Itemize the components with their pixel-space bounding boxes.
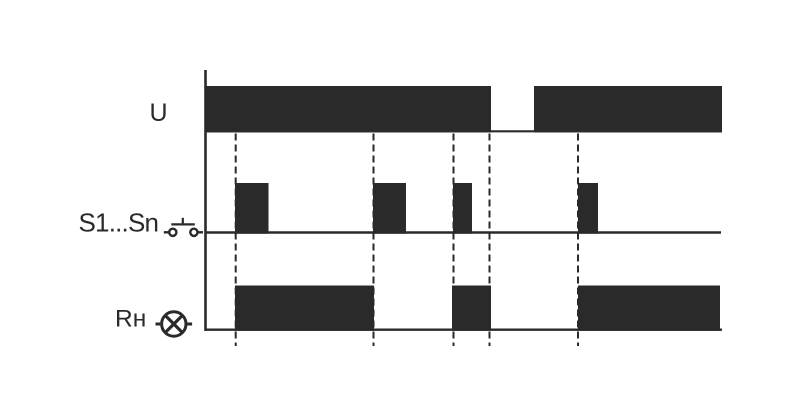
svg-text:S1...Sn: S1...Sn bbox=[79, 208, 159, 238]
svg-text:U: U bbox=[150, 99, 168, 127]
svg-text:Rн: Rн bbox=[115, 306, 146, 333]
